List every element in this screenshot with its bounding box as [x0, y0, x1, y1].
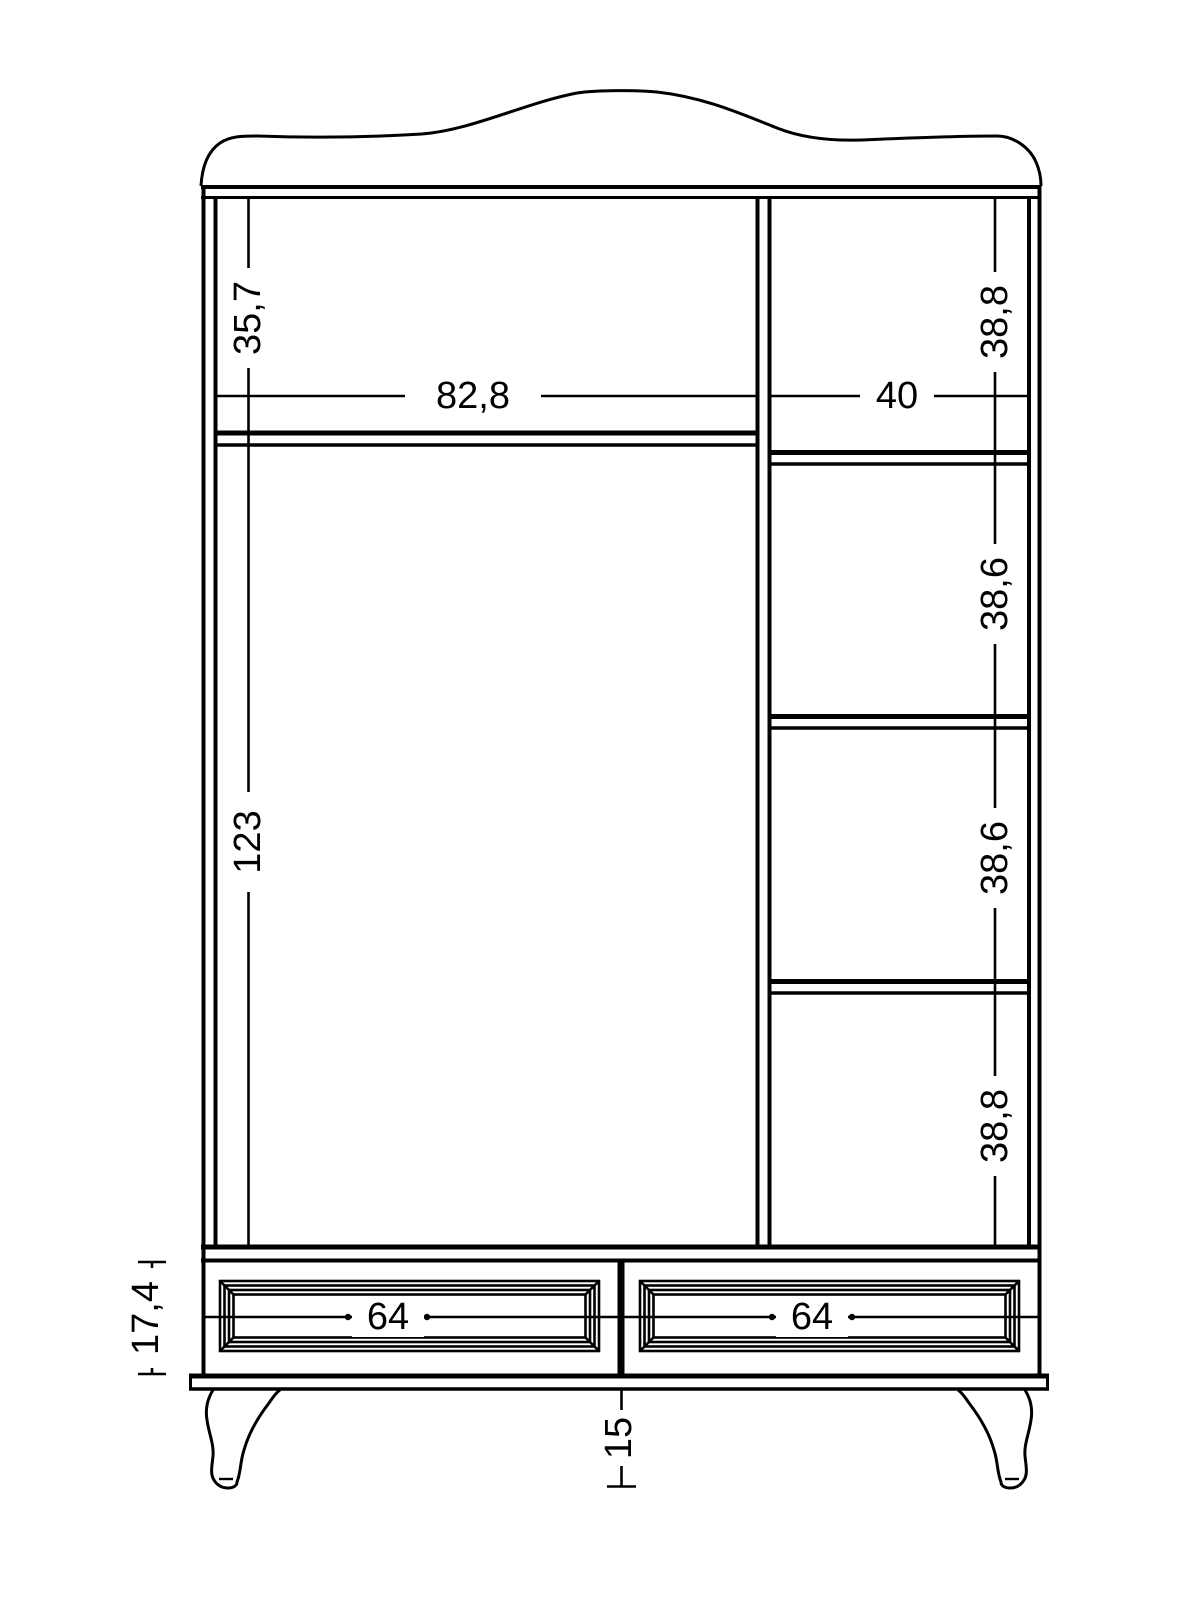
dimension-labels: 35,7 123 82,8 40 38,8 38,6 38,6 38,8 64 … [125, 281, 1016, 1459]
right-shelf-1 [770, 453, 1030, 465]
dim-label-left-opening-width: 82,8 [436, 375, 510, 417]
dim-dot [769, 1314, 775, 1320]
left-leg [206, 1390, 280, 1488]
dim-label-drawer-section-height: 17,4 [125, 1281, 167, 1355]
dim-dot [345, 1314, 351, 1320]
dim-label-right-opening-width: 40 [876, 375, 918, 417]
right-shelf-2 [770, 717, 1030, 729]
dim-label-right-compartment-2: 38,6 [974, 557, 1016, 631]
dim-label-left-top-height: 35,7 [227, 281, 269, 355]
crown-outline [201, 91, 1041, 186]
cabinet-structure [189, 91, 1049, 1488]
dim-dot [849, 1314, 855, 1320]
right-leg [958, 1390, 1032, 1488]
dim-label-right-compartment-3: 38,6 [974, 821, 1016, 895]
base-plinth [189, 1374, 1049, 1390]
top-cornice [201, 187, 1041, 198]
dim-label-drawer-left-width: 64 [367, 1296, 409, 1338]
right-shelf-3 [770, 982, 1030, 994]
dim-label-left-main-height: 123 [227, 810, 269, 873]
center-divider [758, 197, 770, 1247]
left-shelf [215, 433, 757, 445]
dim-dot [424, 1314, 430, 1320]
dim-label-right-compartment-1: 38,8 [974, 285, 1016, 359]
dim-label-leg-height: 15 [598, 1417, 640, 1459]
dim-label-drawer-right-width: 64 [791, 1296, 833, 1338]
wardrobe-dimension-drawing: 35,7 123 82,8 40 38,8 38,6 38,6 38,8 64 … [0, 0, 1200, 1600]
drawing-sheet: 35,7 123 82,8 40 38,8 38,6 38,6 38,8 64 … [0, 0, 1200, 1600]
dim-label-right-compartment-4: 38,8 [974, 1089, 1016, 1163]
bottom-rail [201, 1247, 1041, 1261]
